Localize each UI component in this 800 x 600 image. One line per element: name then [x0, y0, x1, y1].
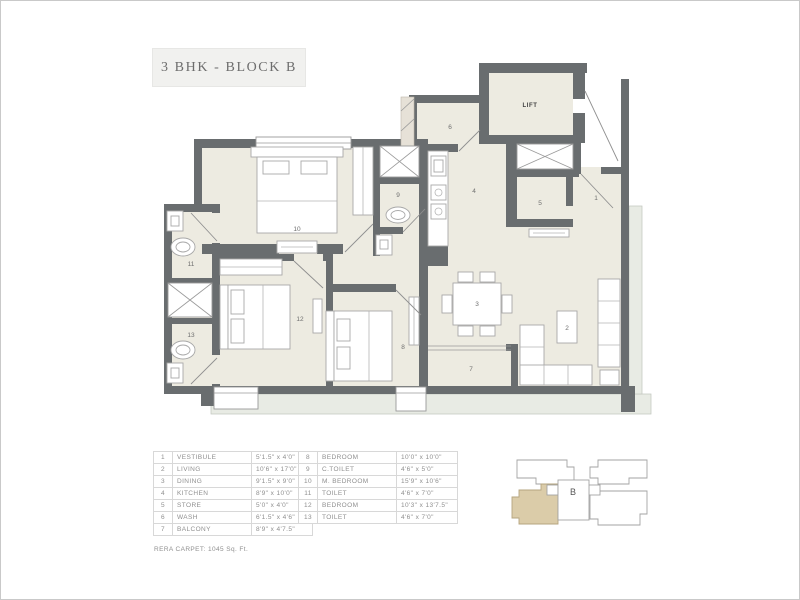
label-dining: 3	[475, 301, 479, 308]
bedroom12-bay-window	[214, 387, 258, 409]
table-row: 5STORE5'0" x 4'0"	[154, 500, 313, 512]
side-table	[600, 370, 619, 385]
label-lift: LIFT	[522, 103, 537, 109]
label-bedroom12: 12	[296, 316, 304, 323]
label-wash: 6	[448, 124, 452, 131]
label-kitchen: 4	[472, 188, 476, 195]
legend-table-left: 1VESTIBULE5'1.5" x 4'0" 2LIVING10'6" x 1…	[153, 451, 313, 536]
bottom-ledge	[211, 394, 651, 414]
table-row: 1VESTIBULE5'1.5" x 4'0"	[154, 452, 313, 464]
table-row: 4KITCHEN8'9" x 10'0"	[154, 488, 313, 500]
table-row: 11TOILET4'6" x 7'0"	[299, 488, 458, 500]
bed-bedroom12	[220, 285, 290, 349]
table-row: 13TOILET4'6" x 7'0"	[299, 512, 458, 524]
keyplan-unit-top-right	[590, 460, 647, 484]
label-balcony: 7	[469, 366, 473, 373]
lobby-stair-line	[585, 91, 618, 161]
keyplan-core	[558, 480, 589, 520]
table-row: 8BEDROOM10'0" x 10'0"	[299, 452, 458, 464]
label-vestibule: 1	[594, 195, 598, 202]
table-row: 12BEDROOM10'3" x 13'7.5"	[299, 500, 458, 512]
store-shelf	[529, 229, 569, 237]
page: 3 BHK - BLOCK B	[0, 0, 800, 600]
legend-table-right: 8BEDROOM10'0" x 10'0" 9C.TOILET4'6" x 5'…	[298, 451, 458, 524]
table-row: 10M. BEDROOM15'9" x 10'6"	[299, 476, 458, 488]
label-master-bedroom: 10	[293, 226, 301, 233]
label-ctoilet: 9	[396, 192, 400, 199]
label-store: 5	[538, 200, 542, 207]
right-ledge	[629, 206, 642, 394]
duct-hatch	[401, 97, 414, 146]
table-row: 3DINING9'1.5" x 9'0"	[154, 476, 313, 488]
table-row: 6WASH6'1.5" x 4'6"	[154, 512, 313, 524]
bed-bedroom8	[326, 311, 392, 381]
table-row: 9C.TOILET4'6" x 5'0"	[299, 464, 458, 476]
shaft-mid	[380, 146, 419, 177]
table-row: 2LIVING10'6" x 17'0"	[154, 464, 313, 476]
label-living: 2	[565, 325, 569, 332]
wardrobe-master-bedroom	[353, 147, 373, 215]
stove-burner-1	[431, 185, 446, 200]
bedroom8-bay-window	[396, 387, 426, 411]
keyplan-unit-bottom-right	[590, 491, 647, 525]
l-sofa-horizontal	[520, 365, 592, 385]
stove-burner-2	[431, 204, 446, 219]
table-row: 7BALCONY8'9" x 4'7.5"	[154, 524, 313, 536]
corridor-basin	[376, 235, 392, 255]
shaft-right	[517, 144, 573, 169]
rera-carpet-note: RERA CARPET: 1045 Sq. Ft.	[154, 546, 248, 553]
shaft-left	[168, 283, 212, 317]
dresser-master-bedroom	[277, 241, 317, 253]
label-bedroom8: 8	[401, 344, 405, 351]
label-toilet13: 13	[187, 332, 195, 339]
key-plan: B	[512, 460, 647, 525]
label-toilet11: 11	[188, 261, 195, 268]
keyplan-block-label: B	[570, 487, 576, 497]
kitchen-counter	[428, 151, 448, 246]
bed-master-bedroom	[251, 147, 343, 233]
toilet9-fixtures	[386, 207, 410, 223]
